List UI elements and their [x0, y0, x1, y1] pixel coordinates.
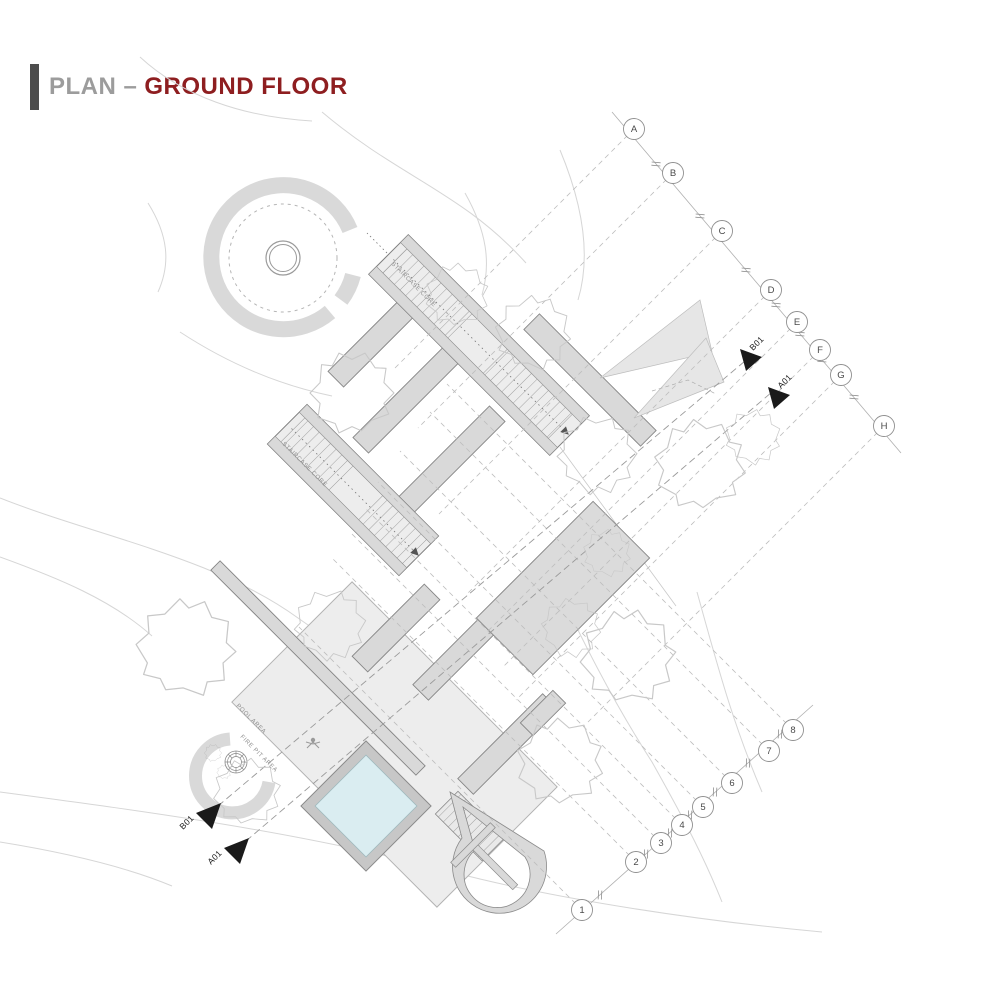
- grid-label-c: C: [719, 226, 726, 237]
- contour-line: [697, 592, 762, 792]
- grid-marker-h: H: [874, 416, 895, 437]
- grid-marker-3: 3: [651, 833, 672, 854]
- grid-label-g: G: [837, 370, 844, 381]
- section-label-a01-top: A01: [775, 372, 793, 390]
- grid-label-e: E: [794, 317, 800, 328]
- grid-marker-a: A: [624, 119, 645, 140]
- grid-marker-6: 6: [722, 773, 743, 794]
- section-marker-b01-bottom: B01: [177, 803, 221, 831]
- section-marker-a01-bottom: A01: [205, 838, 249, 866]
- room-block: [476, 501, 649, 674]
- grid-marker-4: 4: [672, 815, 693, 836]
- section-marker-b01-top: B01: [740, 334, 766, 371]
- floor-plan-drawing: A B C D E F G: [0, 0, 1000, 1000]
- tree-icon: [647, 414, 753, 516]
- grid-label-1: 1: [579, 905, 584, 916]
- grid-label-h: H: [881, 421, 888, 432]
- circular-structure: [211, 185, 353, 329]
- contour-line: [322, 112, 526, 263]
- grid-marker-f: F: [810, 340, 831, 361]
- contour-line: [148, 203, 166, 292]
- section-label-a01-bottom: A01: [205, 848, 223, 866]
- contour-line: [465, 193, 486, 295]
- stair-guide-dotted: [367, 233, 387, 253]
- grid-label-8: 8: [790, 725, 795, 736]
- section-label-b01-top: B01: [747, 334, 765, 352]
- tree-icon: [715, 399, 791, 475]
- circular-wall-segment: [341, 275, 353, 300]
- tree-icon: [117, 579, 255, 716]
- grid-marker-5: 5: [693, 797, 714, 818]
- grid-marker-2: 2: [626, 852, 647, 873]
- grid-bubbles-numbers: 1 2 3 4 5 6 7: [572, 720, 804, 921]
- grid-marker-7: 7: [759, 741, 780, 762]
- grid-label-4: 4: [679, 820, 684, 831]
- section-marker-a01-top: A01: [768, 372, 794, 409]
- wall-segment: [399, 406, 505, 512]
- section-label-b01-bottom: B01: [177, 813, 195, 831]
- grid-marker-1: 1: [572, 900, 593, 921]
- grid-label-d: D: [768, 285, 775, 296]
- grid-label-6: 6: [729, 778, 734, 789]
- grid-label-a: A: [631, 124, 638, 135]
- grid-label-2: 2: [633, 857, 638, 868]
- grid-label-7: 7: [766, 746, 771, 757]
- plan-sheet: PLAN –GROUND FLOOR: [0, 0, 1000, 1000]
- wall-segment: [353, 347, 459, 453]
- grid-marker-g: G: [831, 365, 852, 386]
- contour-line: [0, 557, 152, 636]
- grid-line-8: [447, 384, 793, 730]
- grid-line-a: [394, 129, 634, 369]
- center-column-outer: [266, 241, 300, 275]
- grid-marker-d: D: [761, 280, 782, 301]
- grid-marker-c: C: [712, 221, 733, 242]
- grid-marker-e: E: [787, 312, 808, 333]
- grid-marker-8: 8: [783, 720, 804, 741]
- contour-line: [0, 842, 172, 886]
- contour-line: [180, 332, 332, 396]
- grid-marker-b: B: [663, 163, 684, 184]
- grid-label-b: B: [670, 168, 676, 179]
- grid-label-3: 3: [658, 838, 663, 849]
- contour-line: [140, 57, 312, 121]
- contour-line: [560, 150, 584, 300]
- grid-label-f: F: [817, 345, 823, 356]
- grid-label-5: 5: [700, 802, 705, 813]
